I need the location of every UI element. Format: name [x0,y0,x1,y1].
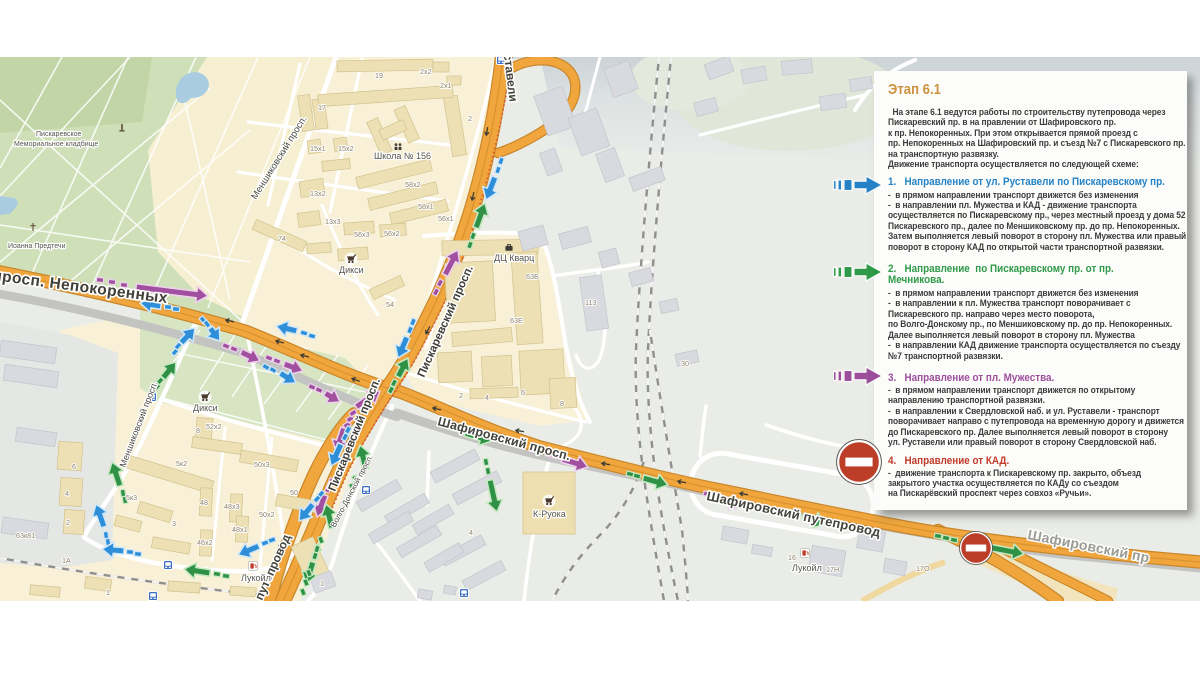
svg-text:6: 6 [72,462,76,471]
svg-text:К-Руока: К-Руока [533,509,566,519]
svg-text:16: 16 [788,553,796,562]
svg-text:Школа № 156: Школа № 156 [374,151,431,161]
svg-text:48: 48 [200,498,208,507]
svg-text:Мемориальное кладбище: Мемориальное кладбище [14,140,98,148]
svg-text:58х2: 58х2 [405,180,421,189]
svg-text:5к2: 5к2 [176,459,187,468]
svg-text:15х2: 15х2 [338,144,354,153]
svg-text:74: 74 [278,234,286,243]
svg-text:2х1: 2х1 [440,81,452,90]
svg-text:50х2: 50х2 [259,510,275,519]
svg-text:13х2: 13х2 [310,189,326,198]
svg-text:17: 17 [318,103,326,112]
svg-text:1А: 1А [62,556,71,565]
svg-text:63Б: 63Б [526,272,539,281]
svg-text:50: 50 [290,488,298,497]
svg-text:52х2: 52х2 [206,422,222,431]
svg-text:2х2: 2х2 [420,67,432,76]
svg-text:54: 54 [386,300,394,309]
svg-text:8: 8 [560,399,564,408]
svg-text:15х1: 15х1 [310,144,326,153]
svg-text:48х1: 48х1 [232,525,248,534]
svg-text:2: 2 [66,518,70,527]
svg-text:17Н: 17Н [826,565,839,574]
svg-text:63Е: 63Е [510,316,523,325]
svg-text:Лукойл: Лукойл [241,573,271,583]
svg-text:2: 2 [468,114,472,123]
svg-text:4: 4 [469,528,473,537]
svg-text:4: 4 [65,489,69,498]
svg-text:113: 113 [585,298,596,307]
svg-text:56х3: 56х3 [354,230,370,239]
svg-text:50х3: 50х3 [254,460,270,469]
svg-text:3: 3 [172,519,176,528]
svg-text:1: 1 [106,588,110,597]
svg-text:56х2: 56х2 [384,229,400,238]
svg-text:30: 30 [681,359,689,368]
svg-text:4: 4 [485,393,489,402]
svg-text:Пискаревское: Пискаревское [36,131,82,138]
svg-text:6: 6 [521,388,525,397]
svg-text:Лукойл: Лукойл [792,563,822,573]
svg-text:Дикси: Дикси [339,265,364,275]
svg-text:13х3: 13х3 [325,217,341,226]
svg-text:Иоанна Предтечи: Иоанна Предтечи [8,243,66,250]
svg-text:56х1: 56х1 [438,214,454,223]
svg-text:48х3: 48х3 [224,502,240,511]
svg-text:63к81: 63к81 [16,531,35,540]
svg-text:1: 1 [320,579,324,588]
svg-text:Дикси: Дикси [193,403,218,413]
svg-text:5к3: 5к3 [126,493,137,502]
svg-text:19: 19 [375,71,383,80]
svg-text:46х2: 46х2 [197,538,213,547]
svg-text:2: 2 [459,391,463,400]
svg-text:ДЦ Кварц: ДЦ Кварц [494,253,534,263]
svg-text:58х1: 58х1 [418,202,434,211]
svg-text:8: 8 [196,426,200,435]
